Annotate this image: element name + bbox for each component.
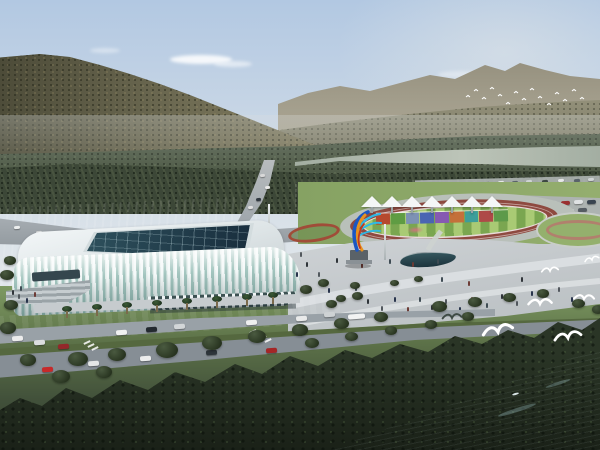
car (246, 320, 257, 325)
tree (468, 297, 482, 307)
pedestrian (516, 301, 518, 306)
canopy-tent (481, 196, 503, 207)
tree (248, 330, 266, 343)
rainbow-sculpture (338, 210, 384, 270)
pedestrian (521, 277, 523, 282)
tree (4, 256, 16, 265)
palm-tree (212, 296, 222, 302)
tree (334, 318, 349, 329)
tree (0, 270, 14, 280)
tree (374, 312, 388, 322)
tree (385, 326, 397, 335)
car (574, 200, 583, 205)
tree (592, 305, 600, 314)
tree (537, 289, 549, 298)
tree (4, 300, 18, 310)
tree (305, 338, 319, 348)
pedestrian (328, 288, 330, 293)
wall-color-block (405, 213, 419, 224)
wall-color-block (391, 213, 405, 224)
pedestrian (296, 272, 298, 277)
tree (292, 324, 308, 336)
palm-tree (122, 302, 132, 308)
canopy-tent (441, 196, 463, 207)
car (14, 226, 20, 229)
car (116, 330, 127, 335)
tree (96, 366, 112, 378)
pedestrian (394, 297, 396, 302)
tree (462, 312, 474, 321)
cyan-ribbon (358, 231, 380, 236)
car (266, 348, 277, 353)
palm-tree (152, 300, 162, 306)
car (256, 198, 261, 201)
canopy-tent (461, 196, 483, 207)
car (588, 178, 594, 181)
pedestrian (300, 252, 302, 257)
palm-tree (242, 294, 252, 300)
palm-tree (268, 292, 278, 298)
cloud (90, 48, 120, 53)
canopy-tent (401, 196, 423, 207)
tree (352, 292, 363, 300)
pedestrian (381, 306, 383, 311)
pedestrian (486, 303, 488, 308)
pedestrian (18, 294, 20, 299)
cloud (214, 61, 252, 67)
pedestrian (412, 262, 414, 267)
tree (0, 322, 16, 334)
canopy-tent (361, 196, 383, 207)
car (324, 312, 335, 317)
pedestrian (20, 286, 22, 291)
pedestrian (26, 298, 28, 303)
pedestrian (367, 299, 369, 304)
pedestrian (306, 262, 308, 267)
pedestrian (34, 292, 36, 297)
pedestrian (407, 307, 409, 312)
wall-color-block (435, 212, 449, 223)
car (12, 336, 23, 341)
car (248, 206, 253, 209)
canopy-tent (421, 196, 443, 207)
tree (432, 301, 447, 312)
pedestrian (531, 291, 533, 296)
sculpture-shadow (345, 264, 371, 269)
pedestrian (437, 259, 439, 264)
pedestrian (468, 281, 470, 286)
pedestrian (318, 272, 320, 277)
pedestrian (441, 277, 443, 282)
pedestrian (389, 259, 391, 264)
tree (52, 370, 70, 383)
tree (318, 279, 329, 287)
car (265, 186, 270, 189)
pedestrian (419, 297, 421, 302)
wall-color-block (494, 210, 508, 221)
car (88, 361, 99, 366)
tree (326, 300, 337, 308)
palm-tree (182, 298, 192, 304)
flagpole (384, 224, 386, 260)
car (587, 200, 596, 205)
car (146, 327, 157, 332)
tree (300, 285, 312, 294)
pedestrian (558, 287, 560, 292)
car (58, 344, 69, 349)
aerial-rendering-scene (0, 0, 600, 450)
car (34, 340, 45, 345)
wall-color-block (450, 211, 464, 222)
palm-tree (92, 304, 102, 310)
car (260, 174, 265, 177)
car (174, 324, 185, 329)
car (206, 350, 217, 355)
car (140, 356, 151, 361)
tree (108, 348, 126, 361)
tree (20, 354, 36, 366)
car (296, 316, 307, 321)
tree (156, 342, 178, 358)
tree (425, 320, 437, 329)
sculpture-base (346, 260, 372, 264)
palm-tree (62, 306, 72, 312)
wall-color-block (420, 212, 434, 223)
canopy-tent (381, 196, 403, 207)
pedestrian (12, 290, 14, 295)
car (42, 367, 53, 372)
